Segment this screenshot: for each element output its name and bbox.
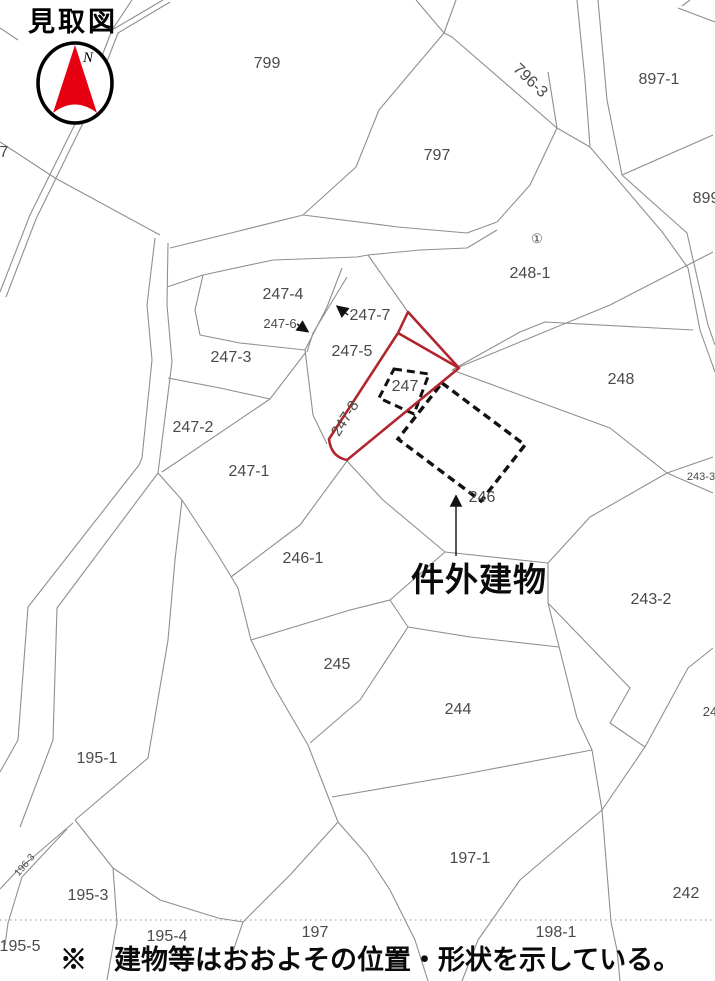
parcel-label: 195-3 [68,887,109,904]
boundary-line [167,255,368,287]
boundary-line [332,750,592,797]
boundary-line [170,215,303,248]
page-title: 見取図 [28,0,118,39]
parcel-label: 195-1 [77,750,118,767]
parcel-label: 897-1 [639,71,680,88]
parcel-label: 243-3 [687,471,715,483]
annotation-arrow-247-7 [338,307,348,315]
boundary-line [0,28,18,40]
boundary-line [548,72,557,128]
parcel-label: 7 [0,144,9,161]
parcel-label: 247-8 [328,398,363,440]
parcel-label: 244 [445,701,472,718]
parcel-label: ① [531,231,543,246]
parcel-label: 247-6 [263,316,296,331]
boundary-line [310,627,408,743]
cadastral-map: N 799797796-3897-1899248-1①248243-3243-2… [0,0,715,981]
parcel-label: 246-1 [283,550,324,567]
boundary-line [5,877,22,945]
boundary-line [195,275,203,335]
boundary-line [347,461,548,563]
disclaimer-note: ※ 建物等はおおよその位置・形状を示している。 [60,938,680,977]
road-line [577,0,715,372]
parcel-label: 245 [324,656,351,673]
boundary-line [368,255,408,312]
parcel-label: 247 [392,378,419,395]
boundary-line [452,252,713,370]
boundary-line [200,335,305,350]
parcel-label: 247-1 [229,463,270,480]
boundary-line [682,0,690,6]
parcel-label: 247-3 [211,349,252,366]
compass-n-label: N [82,50,94,66]
boundary-line [305,350,327,444]
parcel-label: 197-1 [450,850,491,867]
building-outline-large [398,383,525,501]
boundary-line [497,128,557,222]
parcel-label: 797 [424,147,451,164]
boundary-line [303,215,497,233]
parcel-label: 247-2 [173,419,214,436]
parcel-label: 246 [469,489,496,506]
parcel-label: 248-1 [510,265,551,282]
boundary-line [0,142,160,235]
road-line [598,0,715,345]
boundary-line [307,277,347,352]
boundary-line [548,603,645,747]
boundary-line [0,238,155,772]
boundary-line [158,473,338,822]
parcel-label: 247-4 [263,286,304,303]
parcel-label: 242 [673,885,700,902]
parcel-label: 796-3 [510,60,551,101]
boundary-line [75,500,182,820]
compass-rose: N [38,43,112,123]
boundary-line [113,868,243,922]
parcel-label: 799 [254,55,281,72]
sketch-map-page: N 799797796-3897-1899248-1①248243-3243-2… [0,0,715,981]
boundary-line [452,370,713,493]
boundary-line [408,627,559,647]
parcel-label: 247-7 [350,307,391,324]
boundary-line [368,230,497,255]
boundary-line [548,457,713,810]
boundary-line [303,33,444,215]
boundary-line [251,600,408,640]
boundary-line [622,135,713,175]
parcel-label: 247-5 [332,343,373,360]
parcel-label: 248 [608,371,635,388]
parcel-label: 243-2 [631,591,672,608]
parcel-label: 195-5 [0,938,41,955]
parcel-label: 24 [703,704,715,719]
boundary-line [452,322,693,370]
annotation-arrow-247-6 [297,324,307,331]
boundary-line [678,8,715,22]
parcel-label: 899 [693,190,715,207]
boundary-line [557,128,590,147]
boundary-line [168,378,270,399]
boundary-line [416,0,444,33]
kengai-tatemono-label: 件外建物 [411,553,547,601]
parcel-boundaries [0,0,715,981]
boundary-line [444,0,456,33]
boundary-line [305,268,342,350]
boundary-line [162,352,306,472]
